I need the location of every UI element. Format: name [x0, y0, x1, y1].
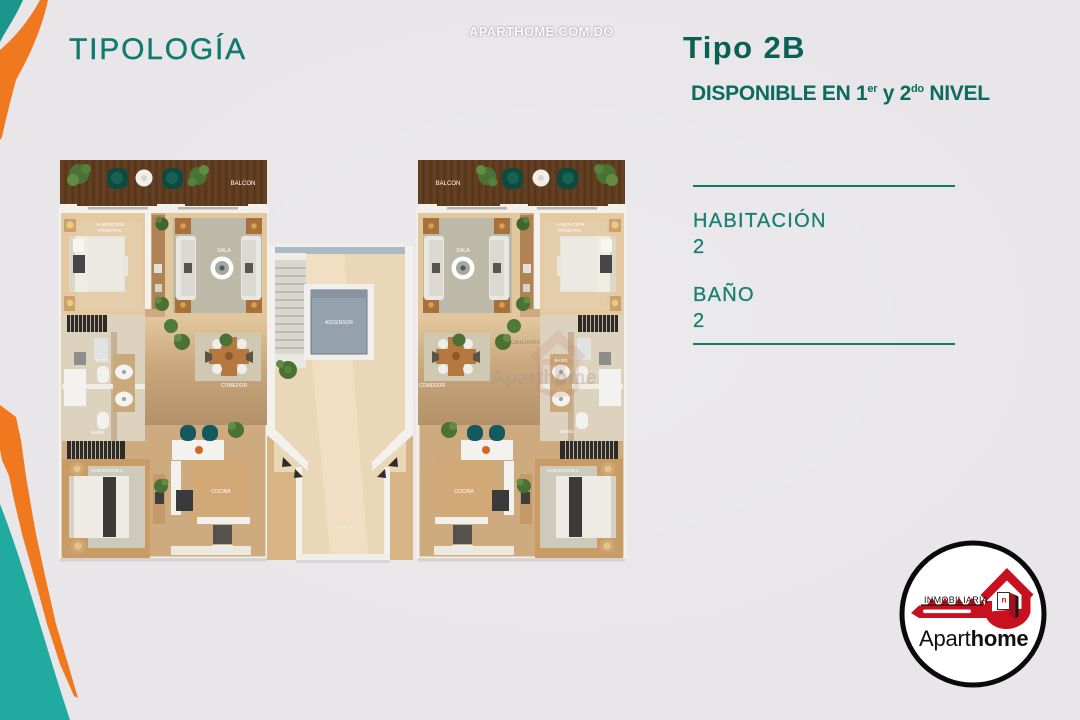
svg-text:COCINA: COCINA — [211, 489, 231, 495]
svg-text:BALCON: BALCON — [436, 181, 461, 187]
svg-text:HABITACION: HABITACION — [96, 222, 124, 227]
svg-text:INMOBILIARIA: INMOBILIARIA — [924, 595, 988, 605]
svg-text:PRINCIPAL: PRINCIPAL — [98, 228, 122, 233]
svg-text:BAÑO: BAÑO — [554, 357, 567, 363]
svg-text:BAÑO: BAÑO — [95, 357, 108, 363]
svg-text:PRINCIPAL: PRINCIPAL — [558, 228, 582, 233]
svg-text:COMEDOR: COMEDOR — [419, 383, 446, 389]
svg-text:ASCENSOR: ASCENSOR — [325, 320, 353, 326]
svg-text:PASILLO: PASILLO — [334, 524, 353, 529]
svg-text:Aparthome: Aparthome — [919, 626, 1028, 651]
svg-text:SALA: SALA — [217, 248, 231, 254]
svg-text:BAÑO: BAÑO — [560, 428, 573, 434]
svg-text:HABITACION 2: HABITACION 2 — [547, 468, 579, 473]
svg-text:BALCON: BALCON — [231, 181, 256, 187]
svg-text:COCINA: COCINA — [454, 489, 474, 495]
svg-text:COMEDOR: COMEDOR — [221, 383, 248, 389]
svg-text:HABITACION 2: HABITACION 2 — [91, 468, 123, 473]
svg-text:BAÑO: BAÑO — [91, 429, 104, 435]
svg-text:HABITACION: HABITACION — [556, 222, 584, 227]
svg-text:MOBILIARIA: MOBILIARIA — [506, 340, 540, 346]
svg-text:SALA: SALA — [456, 248, 470, 254]
svg-text:Aparthome: Aparthome — [491, 367, 597, 389]
svg-text:n: n — [1002, 596, 1007, 605]
